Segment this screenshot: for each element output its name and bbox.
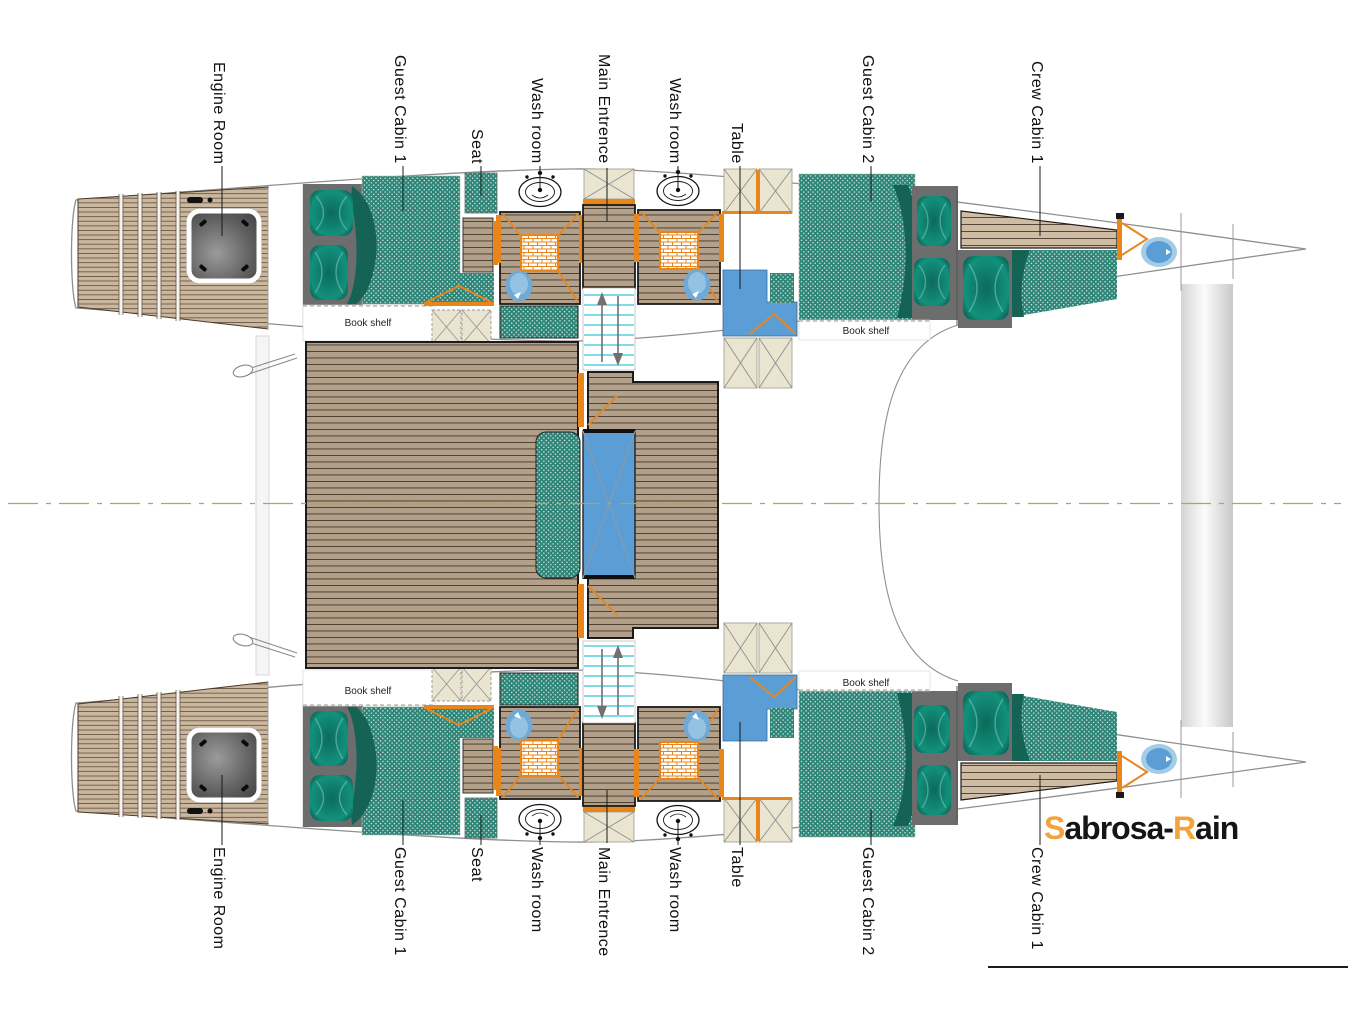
deck-fitting-icon — [208, 198, 213, 203]
door-track — [578, 584, 584, 638]
brand-logo: Sabrosa-Rain — [1044, 810, 1238, 847]
label-crew-cabin-1-top: Crew Cabin 1 — [1027, 0, 1045, 164]
label-wash-room-2-bottom: Wash room — [665, 847, 683, 1011]
catamaran-deck-plan: Book shelf Book shelf Book shelf Book sh… — [0, 0, 1349, 1011]
label-table-top: Table — [727, 0, 745, 164]
shower-tray-icon — [660, 232, 698, 269]
label-guest-cabin-2-bottom: Guest Cabin 2 — [858, 847, 876, 1011]
logo-part-3: R — [1173, 810, 1195, 846]
label-wash-room-1-top: Wash room — [527, 0, 545, 164]
pillow-icon — [310, 190, 353, 236]
pillow-icon — [310, 245, 348, 300]
toilet-icon — [506, 271, 533, 302]
pillow-icon — [914, 258, 950, 306]
aft-beam — [256, 336, 269, 675]
toilet-icon — [1141, 237, 1177, 267]
book-shelf-caption: Book shelf — [345, 318, 392, 329]
logo-part-4: ain — [1195, 810, 1238, 846]
label-engine-room-top: Engine Room — [209, 0, 227, 164]
label-table-bottom: Table — [727, 847, 745, 1011]
door-track — [1117, 219, 1122, 260]
label-main-entrance-bottom: Main Entrence — [594, 847, 612, 1011]
label-crew-cabin-1-bottom: Crew Cabin 1 — [1027, 847, 1045, 1011]
engine-hatch-icon — [187, 209, 262, 284]
saloon-bench — [536, 432, 580, 578]
label-guest-cabin-2-top: Guest Cabin 2 — [858, 0, 876, 164]
label-engine-room-bottom: Engine Room — [209, 847, 227, 1011]
label-seat-bottom: Seat — [467, 847, 485, 1011]
deck-hatch-icon — [584, 169, 634, 199]
cabin-door-area — [424, 273, 494, 306]
forward-beam — [1181, 284, 1233, 727]
logo-part-2: abrosa- — [1064, 810, 1173, 846]
deck-hatch-icon — [724, 338, 792, 388]
book-shelf-caption: Book shelf — [843, 678, 890, 689]
bench — [500, 306, 578, 338]
label-wash-room-2-top: Wash room — [665, 0, 683, 164]
door-track — [578, 373, 584, 427]
staircase-icon — [583, 288, 635, 370]
deck-cleat-icon — [187, 197, 203, 203]
label-guest-cabin-1-top: Guest Cabin 1 — [390, 0, 408, 164]
book-shelf-caption: Book shelf — [843, 326, 890, 337]
toilet-icon — [684, 270, 711, 301]
pillow-icon — [963, 256, 1009, 320]
bridge-deck — [306, 342, 718, 668]
logo-part-1: S — [1044, 810, 1064, 846]
pillow-icon — [917, 196, 951, 246]
bed — [1012, 250, 1117, 317]
vestibule — [463, 218, 498, 272]
book-shelf-caption: Book shelf — [345, 686, 392, 697]
label-wash-room-1-bottom: Wash room — [527, 847, 545, 1011]
label-guest-cabin-1-bottom: Guest Cabin 1 — [390, 847, 408, 1011]
shower-tray-icon — [521, 235, 558, 271]
main-entrance — [583, 169, 635, 370]
table-zone — [722, 169, 797, 388]
guest-cabin-2 — [799, 174, 958, 340]
label-main-entrance-top: Main Entrence — [594, 0, 612, 164]
label-seat-top: Seat — [467, 0, 485, 164]
